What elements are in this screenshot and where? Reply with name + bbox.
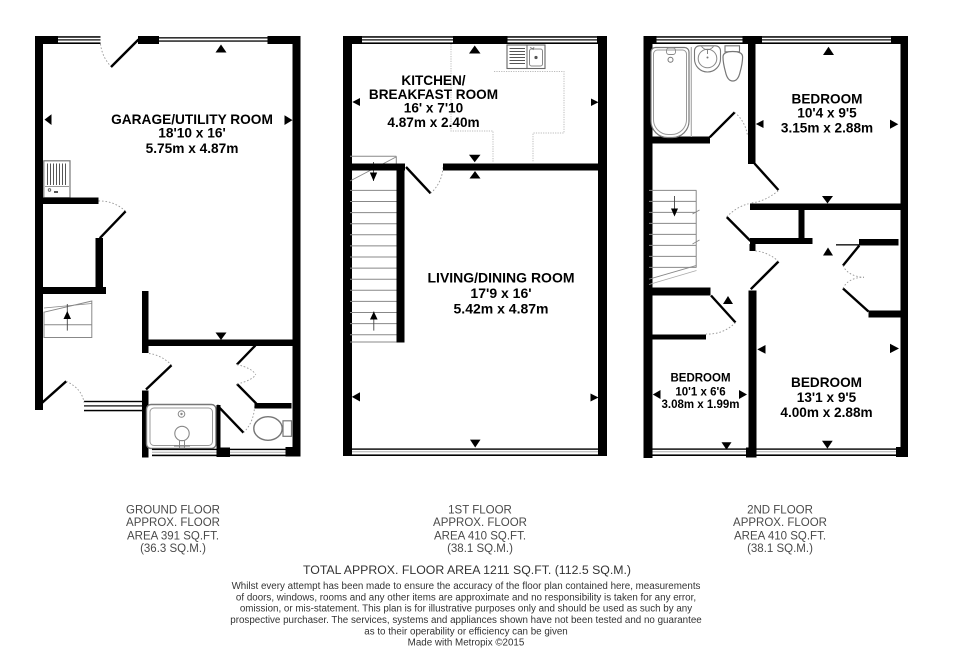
- svg-text:AREA 410 SQ.FT.: AREA 410 SQ.FT.: [434, 531, 526, 543]
- svg-text:16' x 7'10: 16' x 7'10: [404, 101, 463, 116]
- svg-text:of doors, windows, rooms and a: of doors, windows, rooms and any other i…: [236, 592, 696, 603]
- svg-text:prospective purchaser. The ser: prospective purchaser. The services, sys…: [230, 615, 702, 626]
- svg-text:4.00m x 2.88m: 4.00m x 2.88m: [780, 405, 872, 420]
- svg-text:1ST FLOOR: 1ST FLOOR: [448, 505, 512, 517]
- svg-text:APPROX. FLOOR: APPROX. FLOOR: [433, 517, 527, 529]
- svg-text:BEDROOM: BEDROOM: [792, 92, 863, 107]
- svg-text:BEDROOM: BEDROOM: [791, 375, 862, 390]
- svg-text:AREA 391 SQ.FT.: AREA 391 SQ.FT.: [127, 531, 219, 543]
- svg-text:(38.1 SQ.M.): (38.1 SQ.M.): [447, 543, 513, 555]
- svg-text:3.08m x 1.99m: 3.08m x 1.99m: [661, 399, 739, 411]
- svg-text:BEDROOM: BEDROOM: [670, 373, 730, 385]
- svg-text:5.42m x 4.87m: 5.42m x 4.87m: [454, 301, 549, 317]
- svg-text:10'1 x 6'6: 10'1 x 6'6: [675, 386, 725, 398]
- svg-text:(38.1 SQ.M.): (38.1 SQ.M.): [747, 543, 813, 555]
- svg-text:17'9 x 16': 17'9 x 16': [470, 285, 531, 301]
- svg-text:2ND FLOOR: 2ND FLOOR: [747, 505, 813, 517]
- svg-text:TOTAL APPROX. FLOOR AREA 1211: TOTAL APPROX. FLOOR AREA 1211 SQ.FT. (11…: [303, 563, 631, 577]
- svg-text:omission, or mis-statement. Th: omission, or mis-statement. This plan is…: [240, 604, 692, 615]
- svg-text:13'1 x 9'5: 13'1 x 9'5: [797, 390, 857, 405]
- svg-text:APPROX. FLOOR: APPROX. FLOOR: [733, 517, 827, 529]
- svg-text:APPROX. FLOOR: APPROX. FLOOR: [126, 517, 220, 529]
- svg-text:Whilst every attempt has been: Whilst every attempt has been made to en…: [232, 581, 701, 592]
- svg-text:Made with Metropix ©2015: Made with Metropix ©2015: [408, 638, 525, 649]
- svg-text:as to their operability or eff: as to their operability or efficiency ca…: [364, 626, 568, 637]
- svg-text:AREA 410 SQ.FT.: AREA 410 SQ.FT.: [734, 531, 826, 543]
- svg-text:KITCHEN/: KITCHEN/: [401, 73, 465, 88]
- svg-text:10'4 x 9'5: 10'4 x 9'5: [797, 106, 857, 121]
- svg-text:GROUND FLOOR: GROUND FLOOR: [126, 505, 220, 517]
- svg-text:(36.3 SQ.M.): (36.3 SQ.M.): [140, 543, 206, 555]
- svg-text:18'10 x 16': 18'10 x 16': [158, 126, 225, 141]
- svg-text:3.15m x 2.88m: 3.15m x 2.88m: [781, 120, 873, 135]
- svg-text:LIVING/DINING ROOM: LIVING/DINING ROOM: [428, 270, 575, 286]
- svg-text:5.75m x 4.87m: 5.75m x 4.87m: [146, 141, 239, 156]
- svg-text:4.87m x 2.40m: 4.87m x 2.40m: [387, 115, 479, 130]
